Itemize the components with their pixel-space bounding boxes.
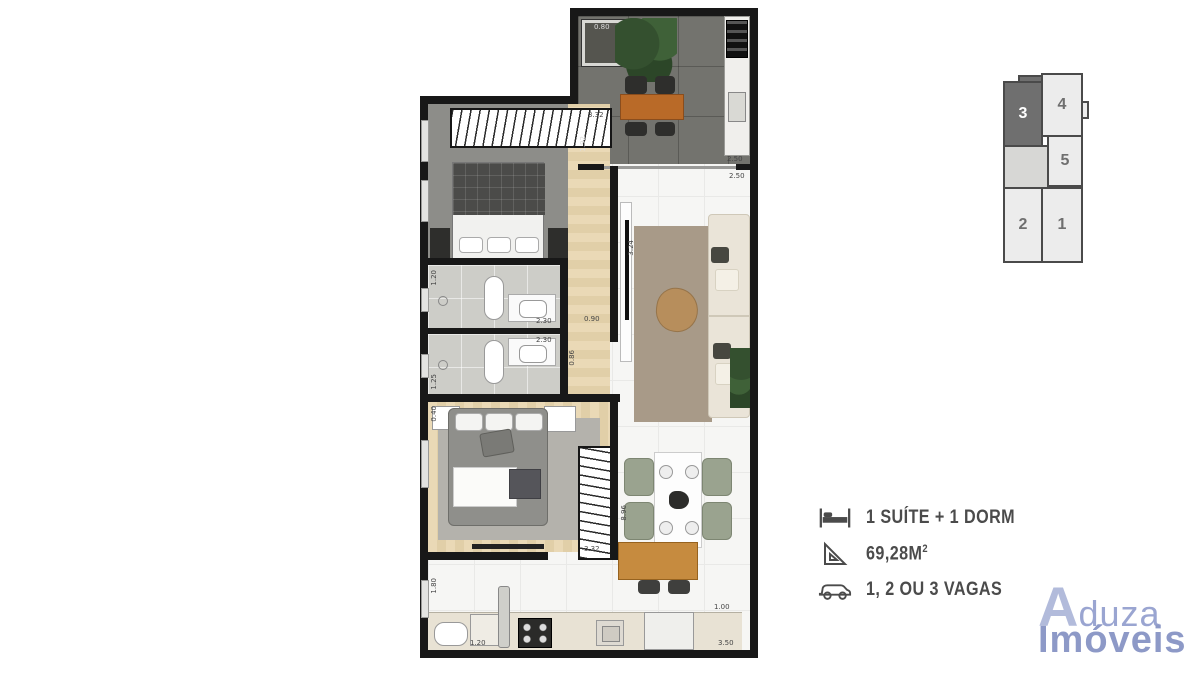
wall bbox=[750, 8, 758, 658]
stove bbox=[518, 618, 552, 648]
wall bbox=[420, 258, 568, 265]
terrace-chair bbox=[625, 122, 647, 136]
unit-2-label: 2 bbox=[1019, 216, 1028, 234]
window bbox=[421, 120, 429, 162]
bathroom-1-shower-head bbox=[438, 296, 448, 306]
sliding-glass-door bbox=[604, 166, 738, 169]
wall bbox=[420, 552, 548, 560]
unit-1: 1 bbox=[1041, 187, 1083, 263]
dim-terrace-left: 1.92 bbox=[580, 136, 587, 152]
wall bbox=[420, 650, 758, 658]
laundry-tank bbox=[434, 622, 468, 646]
bathroom-2-basin bbox=[519, 345, 547, 363]
suite-bed-pillow bbox=[459, 237, 483, 253]
fridge bbox=[644, 612, 694, 650]
dim-overall-length: 8.96 bbox=[621, 505, 628, 521]
suite-bed bbox=[452, 162, 544, 260]
wall bbox=[420, 96, 578, 104]
wall bbox=[570, 8, 578, 104]
brand-logo-line2: Imóveis bbox=[1038, 619, 1198, 662]
unit-3-label: 3 bbox=[1019, 105, 1028, 123]
terrace-plant bbox=[615, 18, 677, 82]
dim-laundry-height: 1.80 bbox=[431, 578, 438, 594]
unit-1-label: 1 bbox=[1058, 216, 1067, 234]
living-plant bbox=[730, 348, 752, 408]
sofa-pillow bbox=[711, 247, 729, 263]
bathroom-1-basin bbox=[519, 300, 547, 318]
suite-bed-pillow bbox=[487, 237, 511, 253]
bbq-grill bbox=[726, 20, 748, 58]
wall bbox=[736, 164, 752, 170]
bedroom2-throw bbox=[509, 469, 541, 499]
sofa-pillow-light bbox=[715, 269, 739, 291]
plate bbox=[659, 465, 673, 479]
dim-bath2-width: 2.30 bbox=[536, 337, 552, 344]
suite-corridor-wood-floor bbox=[568, 104, 610, 440]
bedroom2-pillow bbox=[515, 413, 543, 431]
suite-bed-pillow bbox=[515, 237, 539, 253]
dining-chair bbox=[624, 502, 654, 540]
bedroom2-cushion bbox=[479, 428, 515, 457]
terrace-chair bbox=[625, 76, 647, 94]
dim-bath2-height: 1.25 bbox=[431, 374, 438, 390]
sofa-pillow bbox=[713, 343, 731, 359]
dining-chair bbox=[702, 502, 732, 540]
bedroom2-wardrobe bbox=[578, 446, 614, 560]
unit-4-label: 4 bbox=[1058, 96, 1067, 114]
dim-living-right-a: 2.50 bbox=[727, 156, 743, 163]
dim-hall-width: 0.90 bbox=[584, 316, 600, 323]
bed-icon bbox=[818, 504, 852, 532]
detail-rooms-text: 1 SUÍTE + 1 DORM bbox=[866, 507, 1015, 529]
wall bbox=[420, 394, 620, 402]
dim-planter: 0.80 bbox=[594, 24, 610, 31]
suite-bed-blanket bbox=[453, 163, 545, 215]
wall bbox=[570, 8, 758, 16]
unit-2: 2 bbox=[1003, 187, 1043, 263]
dim-entry: 1.00 bbox=[714, 604, 730, 611]
dim-suite-closet: 3.32 bbox=[588, 112, 604, 119]
bedroom2-nightstand bbox=[544, 406, 576, 432]
bathroom-1-toilet bbox=[484, 276, 504, 320]
dim-laundry-width: 1.20 bbox=[470, 640, 486, 647]
island-stool bbox=[668, 580, 690, 594]
bedroom2-blanket bbox=[453, 467, 517, 507]
terrace-chair bbox=[655, 122, 675, 136]
window bbox=[421, 440, 429, 488]
centerpiece bbox=[669, 491, 689, 509]
bedroom2-pillow bbox=[455, 413, 483, 431]
plate bbox=[685, 465, 699, 479]
wall bbox=[578, 164, 604, 170]
window bbox=[421, 180, 429, 222]
bbq-sink bbox=[728, 92, 746, 122]
detail-area-text: 69,28M2 bbox=[866, 543, 928, 565]
dim-bed2-corner: 0.40 bbox=[431, 406, 438, 422]
core-area bbox=[1003, 145, 1049, 189]
window bbox=[421, 354, 429, 378]
bedroom2-bed bbox=[448, 408, 548, 526]
unit-key-plan: 3 4 5 2 1 bbox=[1003, 73, 1093, 265]
sofa-cushion-divider bbox=[709, 315, 751, 317]
suite-nightstand bbox=[430, 228, 450, 258]
window bbox=[421, 288, 429, 312]
water-heater-column bbox=[498, 586, 510, 648]
detail-parking-text: 1, 2 OU 3 VAGAS bbox=[866, 579, 1002, 601]
dining-table bbox=[654, 452, 702, 548]
terrace-chair bbox=[655, 76, 675, 94]
wall bbox=[610, 166, 618, 342]
plate bbox=[685, 521, 699, 535]
unit-5: 5 bbox=[1047, 135, 1083, 187]
detail-rooms-row: 1 SUÍTE + 1 DORM bbox=[818, 504, 1041, 532]
tv bbox=[625, 220, 629, 320]
detail-area-row: 69,28M2 bbox=[818, 540, 939, 568]
area-icon bbox=[818, 540, 852, 568]
island-stool bbox=[638, 580, 660, 594]
wall bbox=[610, 402, 618, 560]
bathroom-2-toilet bbox=[484, 340, 504, 384]
floorplan-page: 0.80 1.92 3.32 2.50 2.50 3.24 1.20 2.30 … bbox=[0, 0, 1200, 675]
bathroom-2-shower-head bbox=[438, 360, 448, 370]
dim-hall-height: 0.86 bbox=[569, 350, 576, 366]
dim-kitchen-width: 3.50 bbox=[718, 640, 734, 647]
dining-chair bbox=[702, 458, 732, 496]
unit-4: 4 bbox=[1041, 73, 1083, 137]
terrace-table bbox=[620, 94, 684, 120]
unit-5-label: 5 bbox=[1061, 152, 1070, 170]
wall bbox=[420, 328, 568, 334]
dim-living-left: 3.24 bbox=[628, 240, 635, 256]
detail-parking-row: 1, 2 OU 3 VAGAS bbox=[818, 576, 1026, 604]
unit-3: 3 bbox=[1003, 81, 1043, 147]
plate bbox=[659, 521, 673, 535]
brand-logo: Aduza Imóveis bbox=[1038, 582, 1198, 662]
dining-chair bbox=[624, 458, 654, 496]
dim-living-right-b: 2.50 bbox=[729, 173, 745, 180]
dim-bath1-height: 1.20 bbox=[431, 270, 438, 286]
floor-plan: 0.80 1.92 3.32 2.50 2.50 3.24 1.20 2.30 … bbox=[0, 0, 780, 675]
dim-bath1-width: 2.30 bbox=[536, 318, 552, 325]
kitchen-island bbox=[618, 542, 698, 580]
wall bbox=[560, 258, 568, 402]
window bbox=[421, 580, 429, 618]
suite-nightstand bbox=[548, 228, 568, 258]
bedroom2-bench bbox=[472, 544, 544, 549]
car-icon bbox=[818, 576, 852, 604]
kitchen-sink bbox=[596, 620, 624, 646]
sink-basin bbox=[602, 626, 620, 642]
dim-wardrobe: 3.32 bbox=[584, 546, 600, 553]
